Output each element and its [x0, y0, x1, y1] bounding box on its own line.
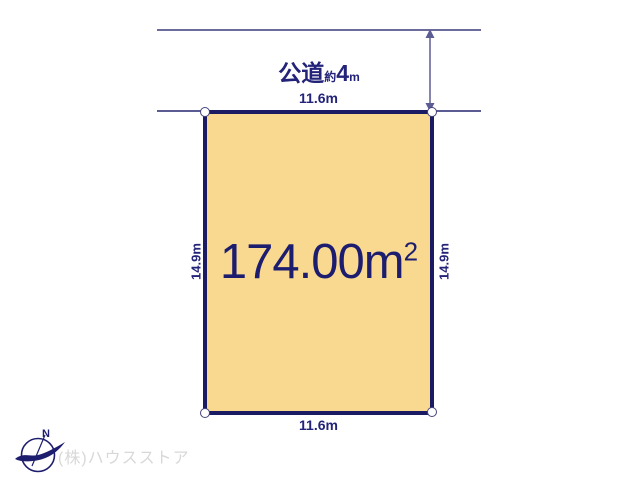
road-name-text: 公道: [278, 60, 324, 86]
plot-corner-marker-bottom-right: [427, 407, 437, 417]
area-exponent: 2: [404, 237, 417, 267]
site-plan-diagram: 公道約4m 11.6m 174.00m2 14.9m 14.9m 11.6m N…: [0, 0, 640, 480]
road-width-unit: m: [349, 70, 360, 84]
road-width-value: 4: [336, 60, 349, 86]
plot-corner-marker-top-right: [427, 107, 437, 117]
land-plot: 174.00m2: [203, 110, 434, 415]
dimension-top-width: 11.6m: [203, 90, 434, 106]
road-label: 公道約4m: [157, 54, 481, 88]
company-watermark: (株)ハウスストア: [58, 444, 190, 468]
dimension-left-depth: 14.9m: [189, 232, 204, 292]
plot-area-label: 174.00m2: [220, 238, 417, 287]
area-value: 174.00m: [220, 235, 404, 289]
plot-corner-marker-bottom-left: [200, 408, 210, 418]
dimension-bottom-width: 11.6m: [203, 417, 434, 433]
road-approx-text: 約: [324, 70, 336, 84]
plot-corner-marker-top-left: [200, 107, 210, 117]
compass-north-label: N: [42, 428, 50, 440]
dimension-right-depth: 14.9m: [437, 232, 452, 292]
